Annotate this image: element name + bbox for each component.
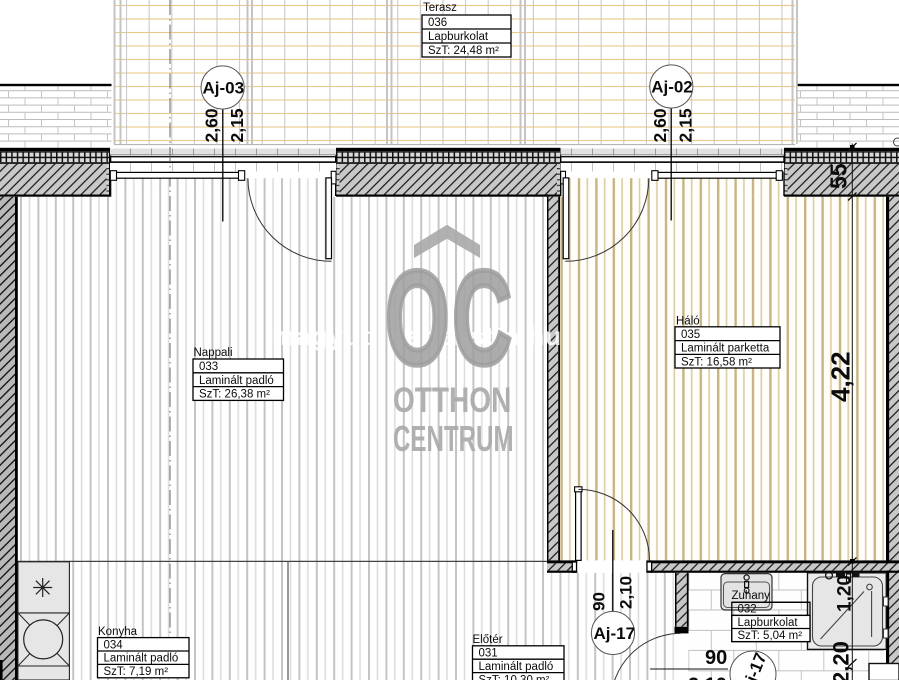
svg-text:Zuhany: Zuhany xyxy=(732,590,771,602)
svg-text:Terasz: Terasz xyxy=(423,2,457,14)
svg-text:Aj-17: Aj-17 xyxy=(594,624,636,643)
svg-text:Laminált padló: Laminált padló xyxy=(479,661,554,673)
svg-text:4,22: 4,22 xyxy=(826,351,856,402)
svg-text:2,10: 2,10 xyxy=(617,576,636,609)
svg-text:Laminált padló: Laminált padló xyxy=(199,375,274,387)
svg-text:OTTHON: OTTHON xyxy=(393,380,511,420)
svg-text:2,20: 2,20 xyxy=(829,641,854,680)
svg-text:2,15: 2,15 xyxy=(676,108,696,142)
svg-text:Konyha: Konyha xyxy=(98,626,138,638)
svg-text:034: 034 xyxy=(104,639,124,651)
svg-text:SzT: 26,38 m²: SzT: 26,38 m² xyxy=(199,389,270,401)
svg-text:Háló: Háló xyxy=(676,316,700,328)
svg-text:035: 035 xyxy=(681,329,700,341)
svg-text:2,60: 2,60 xyxy=(201,108,221,142)
svg-text:Előtér: Előtér xyxy=(473,634,503,646)
svg-text:1,20: 1,20 xyxy=(835,575,856,612)
svg-text:Aj-02: Aj-02 xyxy=(651,78,693,97)
svg-text:SzT: 16,58 m²: SzT: 16,58 m² xyxy=(681,356,752,368)
svg-text:Lapburkolat: Lapburkolat xyxy=(428,31,489,43)
svg-text:Aj-03: Aj-03 xyxy=(203,79,245,98)
svg-text:SzT: 24,48 m²: SzT: 24,48 m² xyxy=(428,45,499,57)
svg-text:55: 55 xyxy=(826,163,852,189)
svg-text:Laminált padló: Laminált padló xyxy=(104,653,179,665)
svg-text:Nappali: Nappali xyxy=(194,347,233,359)
svg-text:Lapburkolat: Lapburkolat xyxy=(738,617,799,629)
svg-text:CENTRUM: CENTRUM xyxy=(393,419,514,459)
svg-text:OC: OC xyxy=(385,243,515,393)
svg-text:Laminált parketta: Laminált parketta xyxy=(681,343,770,355)
svg-text:036: 036 xyxy=(428,17,447,29)
svg-text:2,60: 2,60 xyxy=(650,108,670,142)
svg-text:033: 033 xyxy=(199,361,218,373)
svg-text:031: 031 xyxy=(479,648,498,660)
svg-text:90: 90 xyxy=(705,647,727,669)
svg-text:SzT: 5,04 m²: SzT: 5,04 m² xyxy=(738,630,803,642)
svg-text:2,10: 2,10 xyxy=(688,675,727,680)
svg-text:SzT: 7,19 m²: SzT: 7,19 m² xyxy=(104,666,169,678)
svg-text:2,15: 2,15 xyxy=(227,108,247,142)
svg-text:032: 032 xyxy=(738,604,757,616)
svg-text:90: 90 xyxy=(590,592,609,611)
svg-text:SzT: 10,30 m²: SzT: 10,30 m² xyxy=(479,674,550,680)
